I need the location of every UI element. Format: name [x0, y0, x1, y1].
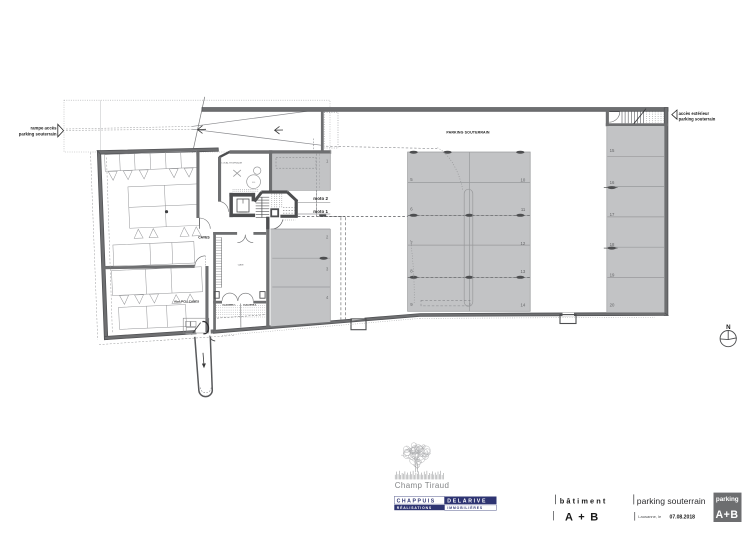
- svg-text:16: 16: [610, 180, 615, 185]
- svg-text:accès extérieur: accès extérieur: [679, 111, 710, 116]
- svg-text:bâtiment: bâtiment: [560, 496, 608, 505]
- svg-text:A + B: A + B: [565, 511, 600, 523]
- svg-text:IMMOBILIÈRES: IMMOBILIÈRES: [447, 505, 483, 510]
- svg-text:moto 2: moto 2: [313, 196, 328, 201]
- svg-text:DELARIVE: DELARIVE: [447, 499, 487, 505]
- svg-text:GLACIERE 1: GLACIERE 1: [222, 304, 236, 307]
- svg-text:CAVES: CAVES: [198, 235, 210, 239]
- svg-text:CAVE: CAVE: [238, 263, 244, 266]
- svg-text:07.08.2018: 07.08.2018: [670, 515, 696, 521]
- svg-text:14: 14: [521, 303, 526, 308]
- svg-text:A+B: A+B: [716, 509, 739, 521]
- svg-text:13: 13: [521, 269, 526, 274]
- svg-text:10: 10: [521, 178, 526, 183]
- svg-text:parking souterrain: parking souterrain: [637, 496, 706, 506]
- svg-text:rampe accès: rampe accès: [30, 125, 57, 130]
- svg-text:RÉALISATIONS: RÉALISATIONS: [397, 505, 432, 510]
- svg-text:parking: parking: [716, 496, 739, 503]
- svg-text:GLACIERE 2: GLACIERE 2: [243, 304, 257, 307]
- svg-text:CHAPPUIS: CHAPPUIS: [397, 499, 436, 505]
- svg-text:11: 11: [521, 207, 526, 212]
- svg-text:PARKING SOUTERRAIN: PARKING SOUTERRAIN: [446, 131, 490, 135]
- svg-text:600: 600: [252, 182, 255, 184]
- svg-text:Lausanne, le: Lausanne, le: [638, 514, 662, 519]
- svg-text:18: 18: [610, 242, 615, 247]
- svg-text:17: 17: [610, 212, 615, 217]
- svg-text:20: 20: [610, 303, 615, 308]
- svg-text:Champ Tiraud: Champ Tiraud: [395, 481, 449, 490]
- svg-text:19: 19: [610, 273, 615, 278]
- svg-text:parking souterrain: parking souterrain: [19, 132, 57, 137]
- svg-text:N: N: [726, 324, 731, 331]
- svg-text:12: 12: [521, 241, 526, 246]
- svg-text:LOCAL TECHNIQUE: LOCAL TECHNIQUE: [222, 161, 243, 164]
- svg-text:Abri PCI / CAVES: Abri PCI / CAVES: [174, 300, 199, 304]
- svg-text:parking souterrain: parking souterrain: [679, 116, 716, 121]
- svg-text:15: 15: [610, 148, 615, 153]
- svg-text:moto 1: moto 1: [313, 209, 328, 214]
